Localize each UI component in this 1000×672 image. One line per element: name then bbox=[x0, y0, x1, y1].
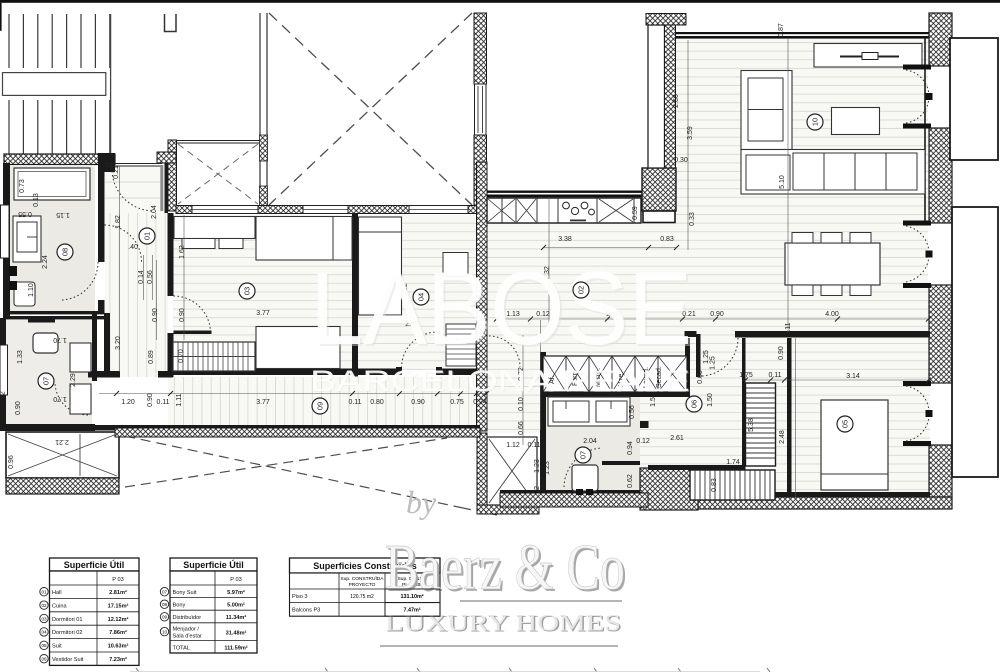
svg-text:Cuina: Cuina bbox=[52, 603, 68, 609]
svg-text:2.04: 2.04 bbox=[583, 438, 597, 445]
svg-text:0.94: 0.94 bbox=[627, 441, 634, 455]
svg-text:02: 02 bbox=[577, 286, 586, 294]
svg-text:LABOSE: LABOSE bbox=[310, 251, 692, 367]
svg-text:0.90: 0.90 bbox=[710, 311, 724, 318]
svg-text:0.90: 0.90 bbox=[15, 401, 22, 415]
svg-text:0.96: 0.96 bbox=[8, 455, 15, 469]
svg-text:5.38: 5.38 bbox=[748, 418, 755, 432]
svg-text:0.11: 0.11 bbox=[527, 442, 540, 449]
svg-text:0.62: 0.62 bbox=[627, 474, 634, 488]
svg-text:07: 07 bbox=[42, 377, 51, 385]
svg-text:1.20: 1.20 bbox=[121, 399, 135, 406]
svg-text:0.13: 0.13 bbox=[33, 193, 40, 207]
svg-text:0.56: 0.56 bbox=[629, 405, 636, 419]
svg-text:07: 07 bbox=[579, 451, 588, 459]
svg-text:1.25: 1.25 bbox=[710, 356, 717, 370]
svg-text:0.75: 0.75 bbox=[450, 399, 464, 406]
svg-text:111.59m²: 111.59m² bbox=[224, 644, 247, 651]
svg-text:Sup. CONSTRUÏDA: Sup. CONSTRUÏDA bbox=[341, 575, 385, 582]
svg-text:0.59: 0.59 bbox=[632, 206, 639, 220]
svg-text:1.11: 1.11 bbox=[176, 393, 183, 406]
svg-text:0.89: 0.89 bbox=[148, 350, 155, 364]
svg-text:0.80: 0.80 bbox=[370, 399, 384, 406]
svg-text:04: 04 bbox=[417, 293, 426, 301]
svg-text:0.14: 0.14 bbox=[138, 270, 145, 284]
svg-text:Hall: Hall bbox=[52, 590, 62, 596]
svg-text:2.48: 2.48 bbox=[779, 430, 786, 444]
svg-text:0.83: 0.83 bbox=[660, 236, 674, 243]
svg-text:1.23: 1.23 bbox=[544, 461, 551, 475]
svg-text:1.70: 1.70 bbox=[53, 336, 67, 343]
svg-text:4.00: 4.00 bbox=[825, 311, 839, 318]
svg-text:2.24: 2.24 bbox=[42, 255, 49, 269]
svg-text:3.20: 3.20 bbox=[115, 336, 122, 350]
svg-text:0.21: 0.21 bbox=[113, 165, 120, 179]
svg-text:1.10: 1.10 bbox=[28, 283, 35, 297]
svg-text:08: 08 bbox=[162, 602, 168, 607]
svg-text:Superficie Útil: Superficie Útil bbox=[183, 559, 244, 570]
svg-text:0.12: 0.12 bbox=[0, 391, 7, 405]
svg-text:PROYECTO: PROYECTO bbox=[349, 582, 376, 588]
svg-text:.12: .12 bbox=[534, 486, 541, 496]
svg-text:05: 05 bbox=[841, 420, 850, 428]
svg-text:31.48m²: 31.48m² bbox=[226, 630, 247, 637]
svg-text:Bony: Bony bbox=[173, 603, 186, 609]
svg-text:0.11: 0.11 bbox=[785, 322, 792, 335]
svg-text:1.75: 1.75 bbox=[739, 372, 753, 379]
svg-text:0.90: 0.90 bbox=[152, 308, 159, 322]
svg-text:Sala d'estar: Sala d'estar bbox=[173, 633, 203, 639]
svg-text:Dormitori 02: Dormitori 02 bbox=[52, 630, 82, 636]
svg-text:05: 05 bbox=[41, 643, 47, 648]
svg-text:3.59: 3.59 bbox=[687, 126, 694, 140]
svg-text:09: 09 bbox=[162, 615, 168, 620]
svg-text:10: 10 bbox=[162, 629, 168, 634]
svg-text:120.75 m2: 120.75 m2 bbox=[350, 594, 374, 600]
svg-text:0.90: 0.90 bbox=[411, 399, 425, 406]
svg-text:Piso 3: Piso 3 bbox=[292, 594, 308, 600]
svg-text:0.90: 0.90 bbox=[778, 346, 785, 360]
svg-text:0.60: 0.60 bbox=[697, 370, 704, 384]
svg-text:0.90: 0.90 bbox=[179, 308, 186, 322]
svg-text:0.30: 0.30 bbox=[674, 157, 688, 164]
svg-text:2.29: 2.29 bbox=[70, 373, 77, 387]
svg-text:07: 07 bbox=[162, 590, 168, 595]
svg-text:10: 10 bbox=[811, 118, 820, 126]
svg-text:2.81m²: 2.81m² bbox=[109, 589, 127, 596]
svg-text:0.83: 0.83 bbox=[711, 478, 718, 492]
svg-text:02: 02 bbox=[41, 603, 47, 608]
svg-text:Suit: Suit bbox=[52, 644, 62, 650]
svg-text:0.56: 0.56 bbox=[147, 270, 154, 284]
svg-text:1.50: 1.50 bbox=[707, 393, 714, 407]
svg-text:0.33: 0.33 bbox=[689, 212, 696, 226]
svg-text:03: 03 bbox=[243, 287, 252, 295]
svg-text:17.15m²: 17.15m² bbox=[108, 602, 129, 609]
svg-text:06: 06 bbox=[690, 400, 699, 408]
svg-text:1.33: 1.33 bbox=[17, 350, 24, 364]
svg-text:TOTAL: TOTAL bbox=[173, 645, 191, 651]
svg-text:2.66: 2.66 bbox=[673, 94, 680, 108]
svg-text:1.15: 1.15 bbox=[56, 211, 70, 218]
svg-text:Superficie Útil: Superficie Útil bbox=[64, 559, 125, 570]
svg-text:P 03: P 03 bbox=[230, 577, 241, 583]
svg-text:0.24: 0.24 bbox=[473, 399, 487, 406]
svg-text:.40: .40 bbox=[128, 244, 138, 251]
svg-text:7.23m²: 7.23m² bbox=[109, 656, 127, 663]
svg-text:BARCELONA REALE: BARCELONA REALE bbox=[310, 365, 690, 398]
svg-text:04: 04 bbox=[41, 630, 47, 635]
svg-text:1.23: 1.23 bbox=[534, 459, 541, 473]
svg-text:2.61: 2.61 bbox=[670, 435, 684, 442]
svg-text:11.34m²: 11.34m² bbox=[226, 614, 247, 621]
svg-text:3.77: 3.77 bbox=[256, 399, 270, 406]
svg-text:1.74: 1.74 bbox=[726, 459, 740, 466]
svg-text:Vestidor Suit: Vestidor Suit bbox=[52, 657, 84, 663]
svg-text:2.04: 2.04 bbox=[151, 205, 158, 219]
svg-text:12.12m²: 12.12m² bbox=[108, 616, 129, 623]
svg-text:7.86m²: 7.86m² bbox=[109, 629, 127, 636]
svg-text:1.12: 1.12 bbox=[506, 442, 520, 449]
svg-text:Bony Suit: Bony Suit bbox=[173, 590, 197, 596]
svg-text:0.55: 0.55 bbox=[18, 210, 32, 217]
svg-text:131.10m²: 131.10m² bbox=[400, 594, 423, 600]
svg-text:5.10: 5.10 bbox=[779, 175, 786, 189]
svg-text:5.97m²: 5.97m² bbox=[227, 589, 245, 596]
svg-text:0.11: 0.11 bbox=[348, 399, 361, 406]
svg-text:1.82: 1.82 bbox=[115, 215, 122, 229]
svg-text:0.73: 0.73 bbox=[19, 179, 26, 193]
svg-text:0.70: 0.70 bbox=[178, 349, 185, 363]
svg-text:01: 01 bbox=[41, 590, 47, 595]
svg-text:1.70: 1.70 bbox=[53, 395, 67, 402]
svg-text:0.10: 0.10 bbox=[518, 397, 525, 411]
svg-text:06: 06 bbox=[41, 657, 47, 662]
svg-text:Balcons P3: Balcons P3 bbox=[292, 608, 320, 614]
svg-text:by: by bbox=[406, 484, 437, 520]
svg-text:Distribuïdor: Distribuïdor bbox=[173, 615, 202, 621]
svg-text:03: 03 bbox=[41, 616, 47, 621]
svg-text:01: 01 bbox=[143, 232, 152, 240]
svg-text:0.90: 0.90 bbox=[147, 393, 154, 407]
svg-text:0.11: 0.11 bbox=[156, 399, 169, 406]
svg-text:3.38: 3.38 bbox=[558, 236, 572, 243]
svg-text:3.77: 3.77 bbox=[256, 310, 270, 317]
svg-text:P 03: P 03 bbox=[112, 577, 123, 583]
svg-text:08: 08 bbox=[61, 248, 70, 256]
svg-text:7.47m²: 7.47m² bbox=[403, 608, 420, 614]
svg-text:5.00m²: 5.00m² bbox=[227, 602, 245, 609]
svg-text:2.21: 2.21 bbox=[55, 438, 69, 445]
svg-text:0.11: 0.11 bbox=[768, 372, 781, 379]
svg-text:10.63m²: 10.63m² bbox=[108, 643, 129, 650]
svg-text:0.12: 0.12 bbox=[636, 438, 650, 445]
svg-text:Menjador /: Menjador / bbox=[173, 626, 200, 632]
svg-text:1.62: 1.62 bbox=[179, 245, 186, 259]
svg-text:09: 09 bbox=[316, 402, 325, 410]
svg-text:3.14: 3.14 bbox=[846, 373, 860, 380]
svg-text:Dormitori 01: Dormitori 01 bbox=[52, 617, 82, 623]
svg-text:LUXURY HOMES: LUXURY HOMES bbox=[385, 611, 621, 636]
svg-text:0.87: 0.87 bbox=[778, 23, 785, 37]
svg-text:0.66: 0.66 bbox=[518, 421, 525, 435]
